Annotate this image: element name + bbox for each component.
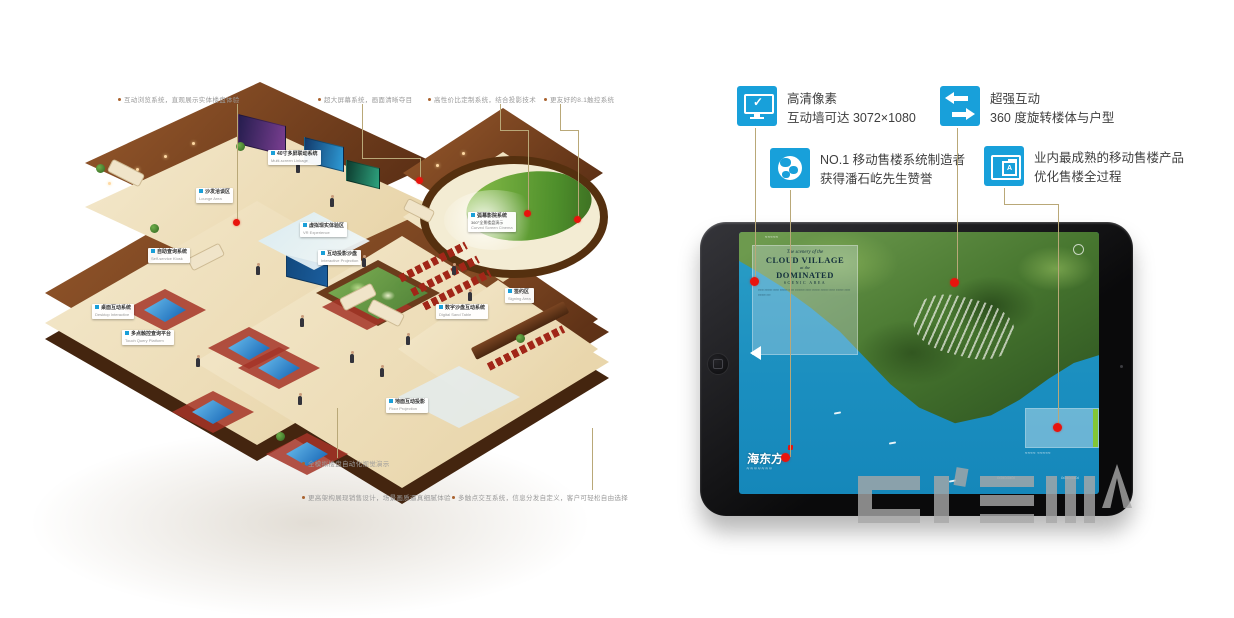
arrow-left-tail bbox=[954, 96, 968, 101]
leader-line bbox=[1004, 188, 1005, 204]
feature-note-bottom-2: 更高架构展现销售设计，场景画质逼真细腻体验 bbox=[302, 492, 451, 502]
map-marker bbox=[416, 177, 423, 184]
scene-label: 沙发洽谈区 Lounge Area bbox=[196, 188, 233, 203]
monitor-base bbox=[750, 117, 764, 119]
scene-label: 40寸多屏联动系统 Multi-screen Linkage bbox=[268, 150, 321, 165]
feature-note-top-2: 超大屏幕系统，画面清晰夺目 bbox=[318, 94, 412, 104]
map-hotspot[interactable] bbox=[781, 453, 790, 462]
bullet-icon bbox=[452, 496, 455, 499]
tablet-screen: The scenery of the CLOUD VILLAGE at the … bbox=[739, 232, 1099, 494]
monitor-outline: ✓ bbox=[744, 94, 774, 114]
bullet-icon bbox=[544, 98, 547, 101]
feature-text-mature: 业内最成熟的移动售楼产品优化售楼全过程 bbox=[1034, 149, 1184, 188]
arrow-right-head bbox=[966, 108, 975, 120]
leader-line bbox=[560, 104, 561, 130]
overlay-subtitle: SCENIC AREA bbox=[758, 280, 852, 285]
scene-label: 互动投影沙盘 Interactive Projection bbox=[318, 250, 361, 265]
leader-line bbox=[500, 130, 528, 131]
label-icon bbox=[303, 223, 307, 227]
leader-line bbox=[362, 158, 420, 159]
globe-circle bbox=[778, 156, 802, 180]
window-a-icon: A bbox=[984, 146, 1024, 186]
panel-green-bar bbox=[1093, 409, 1098, 447]
wall-lamp bbox=[192, 142, 195, 145]
letter-a-box: A bbox=[1002, 161, 1017, 176]
bullet-icon bbox=[428, 98, 431, 101]
watermark-glyph bbox=[980, 476, 1034, 523]
map-marker bbox=[524, 210, 531, 217]
label-icon bbox=[125, 331, 129, 335]
arrows-swap-icon bbox=[940, 86, 980, 126]
feature-text-no1: NO.1 移动售楼系统制造者获得潘石屹先生赞誉 bbox=[820, 151, 965, 190]
scene-label: 桌面互动系统 Desktop Interactive bbox=[92, 304, 134, 319]
plant bbox=[96, 164, 105, 173]
screen-top-caption: ≈≈≈≈≈ bbox=[765, 234, 778, 239]
map-overlay-card: The scenery of the CLOUD VILLAGE at the … bbox=[752, 245, 858, 355]
scene-label: 数字沙盘互动系统 Digital Sand Table bbox=[436, 304, 488, 319]
map-marker bbox=[233, 219, 240, 226]
label-icon bbox=[151, 249, 155, 253]
person-figure bbox=[350, 354, 354, 363]
watermark-glyph bbox=[934, 476, 949, 523]
map-info-panel bbox=[1025, 408, 1099, 448]
wall-lamp bbox=[108, 182, 111, 185]
person-figure bbox=[380, 368, 384, 377]
scene-label: 多点触控查询平台 Touch Query Platform bbox=[122, 330, 174, 345]
leader-line bbox=[790, 190, 791, 457]
leader-line bbox=[362, 104, 363, 158]
leader-line bbox=[578, 130, 579, 220]
leader-line bbox=[755, 128, 756, 282]
project-logo: 海东方 ≈≈≈≈≈≈≈ bbox=[746, 450, 784, 472]
arrow-left-head bbox=[945, 92, 954, 104]
overlay-title-1: CLOUD VILLAGE bbox=[758, 255, 852, 265]
leader-line bbox=[592, 428, 593, 490]
watermark-glyph bbox=[858, 476, 920, 523]
scene-label: 自助查询系统 Self-service Kiosk bbox=[148, 248, 190, 263]
wall-lamp bbox=[436, 164, 439, 167]
feature-note-bottom-3: 多触点交互系统，信息分发自定义，客户可轻松自由选择 bbox=[452, 492, 628, 502]
person-figure bbox=[256, 266, 260, 275]
leader-line bbox=[1004, 204, 1058, 205]
person-figure bbox=[300, 318, 304, 327]
globe-continent bbox=[789, 166, 798, 174]
back-arrow[interactable] bbox=[750, 346, 761, 360]
checkmark-glyph: ✓ bbox=[753, 95, 763, 109]
bullet-icon bbox=[318, 98, 321, 101]
feature-note-top-4: 更友好的8.1触控系统 bbox=[544, 94, 614, 104]
person-figure bbox=[196, 358, 200, 367]
overlay-body-text: ≈≈≈ ≈≈≈≈ ≈≈≈ ≈≈≈≈ ≈≈≈ ≈≈≈≈≈ ≈≈≈ ≈≈≈≈ ≈≈≈… bbox=[758, 288, 852, 299]
person-figure bbox=[330, 198, 334, 207]
bullet-icon bbox=[118, 98, 121, 101]
feature-text-hd: 高清像素互动墙可达 3072×1080 bbox=[787, 90, 916, 129]
label-icon bbox=[471, 213, 475, 217]
label-icon bbox=[199, 189, 203, 193]
leader-line bbox=[957, 128, 958, 283]
person-figure bbox=[452, 266, 456, 275]
leader-line bbox=[528, 130, 529, 214]
leader-line bbox=[1058, 204, 1059, 428]
leader-line bbox=[500, 104, 501, 130]
scene-label: 虚拟现实体验区 VR Experience bbox=[300, 222, 347, 237]
page: { "left": { "top_labels": [ {"text": "互动… bbox=[0, 0, 1234, 594]
label-icon bbox=[508, 289, 512, 293]
map-hotspot[interactable] bbox=[1053, 423, 1062, 432]
wall-lamp bbox=[462, 152, 465, 155]
feature-note-bottom-1: 全模拟楼盘自动化视觉演示 bbox=[302, 458, 390, 468]
feature-note-top-3: 高性价比定制系统，结合投影技术 bbox=[428, 94, 536, 104]
boat bbox=[889, 441, 896, 444]
watermark-glyph bbox=[1046, 476, 1096, 523]
arrow-right-tail bbox=[952, 112, 966, 117]
feature-text-rotate: 超强互动360 度旋转楼体与户型 bbox=[990, 90, 1114, 129]
leader-line bbox=[337, 408, 338, 458]
overlay-title-2: DOMINATED bbox=[758, 270, 852, 280]
camera-dot bbox=[1120, 365, 1123, 368]
logo-script-line: ≈≈≈≈≈≈≈ bbox=[746, 467, 782, 472]
person-figure bbox=[406, 336, 410, 345]
bullet-icon bbox=[302, 496, 305, 499]
map-hotspot[interactable] bbox=[950, 278, 959, 287]
globe-continent bbox=[782, 171, 790, 178]
person-figure bbox=[468, 292, 472, 301]
globe-continent bbox=[780, 158, 791, 167]
leader-line bbox=[560, 130, 578, 131]
scene-label: 地面互动投影 Floor Projection bbox=[386, 398, 428, 413]
compass-icon bbox=[1073, 244, 1084, 255]
scene-label: 签约区 Signing Area bbox=[505, 288, 534, 303]
scene-label: 弧幕影院系统 360°全景楼盘演示 Curved Screen Cinema bbox=[468, 212, 516, 232]
home-button[interactable] bbox=[707, 353, 729, 375]
leader-line bbox=[237, 104, 238, 223]
person-figure bbox=[298, 396, 302, 405]
plant bbox=[516, 334, 525, 343]
bullet-icon bbox=[302, 462, 305, 465]
panel-caption: ≈≈≈≈ ≈≈≈≈≈ bbox=[1025, 450, 1051, 455]
plant bbox=[276, 432, 285, 441]
person-figure bbox=[296, 164, 300, 173]
monitor-check-icon: ✓ bbox=[737, 86, 777, 126]
plant bbox=[150, 224, 159, 233]
tablet-device: The scenery of the CLOUD VILLAGE at the … bbox=[700, 222, 1133, 516]
boat bbox=[834, 411, 841, 414]
globe-icon bbox=[770, 148, 810, 188]
label-icon bbox=[321, 251, 325, 255]
person-figure bbox=[362, 258, 366, 267]
feature-note-top-1: 互动浏览系统，直观展示实体楼盘体验 bbox=[118, 94, 240, 104]
label-icon bbox=[95, 305, 99, 309]
label-icon bbox=[389, 399, 393, 403]
map-hotspot[interactable] bbox=[750, 277, 759, 286]
home-button-square bbox=[713, 359, 723, 369]
map-marker bbox=[574, 216, 581, 223]
label-icon bbox=[439, 305, 443, 309]
window-outline: A bbox=[991, 155, 1021, 180]
wall-lamp bbox=[164, 155, 167, 158]
label-icon bbox=[271, 151, 275, 155]
showroom-scene: 40寸多屏联动系统 Multi-screen Linkage 沙发洽谈区 Lou… bbox=[0, 108, 660, 578]
